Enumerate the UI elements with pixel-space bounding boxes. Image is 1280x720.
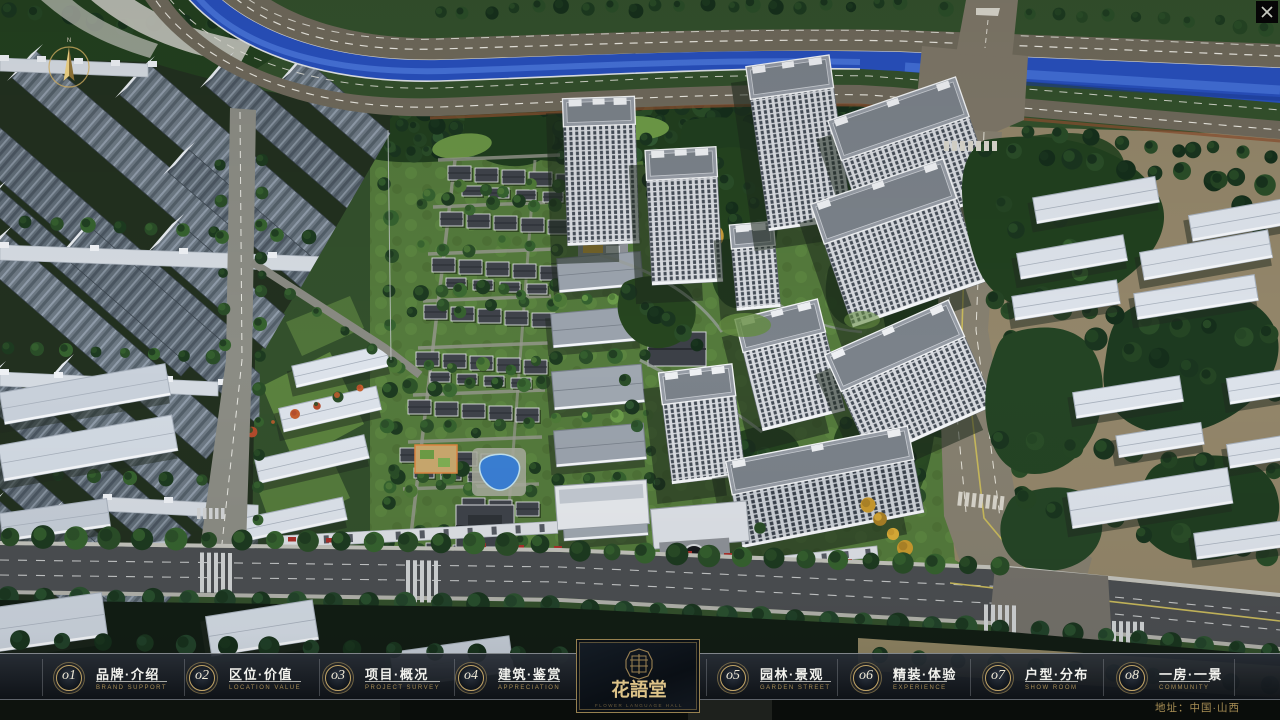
svg-text:花語堂: 花語堂	[611, 679, 667, 701]
svg-text:N: N	[67, 38, 71, 44]
svg-text:FLOWER LANGUAGE HALL: FLOWER LANGUAGE HALL	[595, 703, 683, 708]
